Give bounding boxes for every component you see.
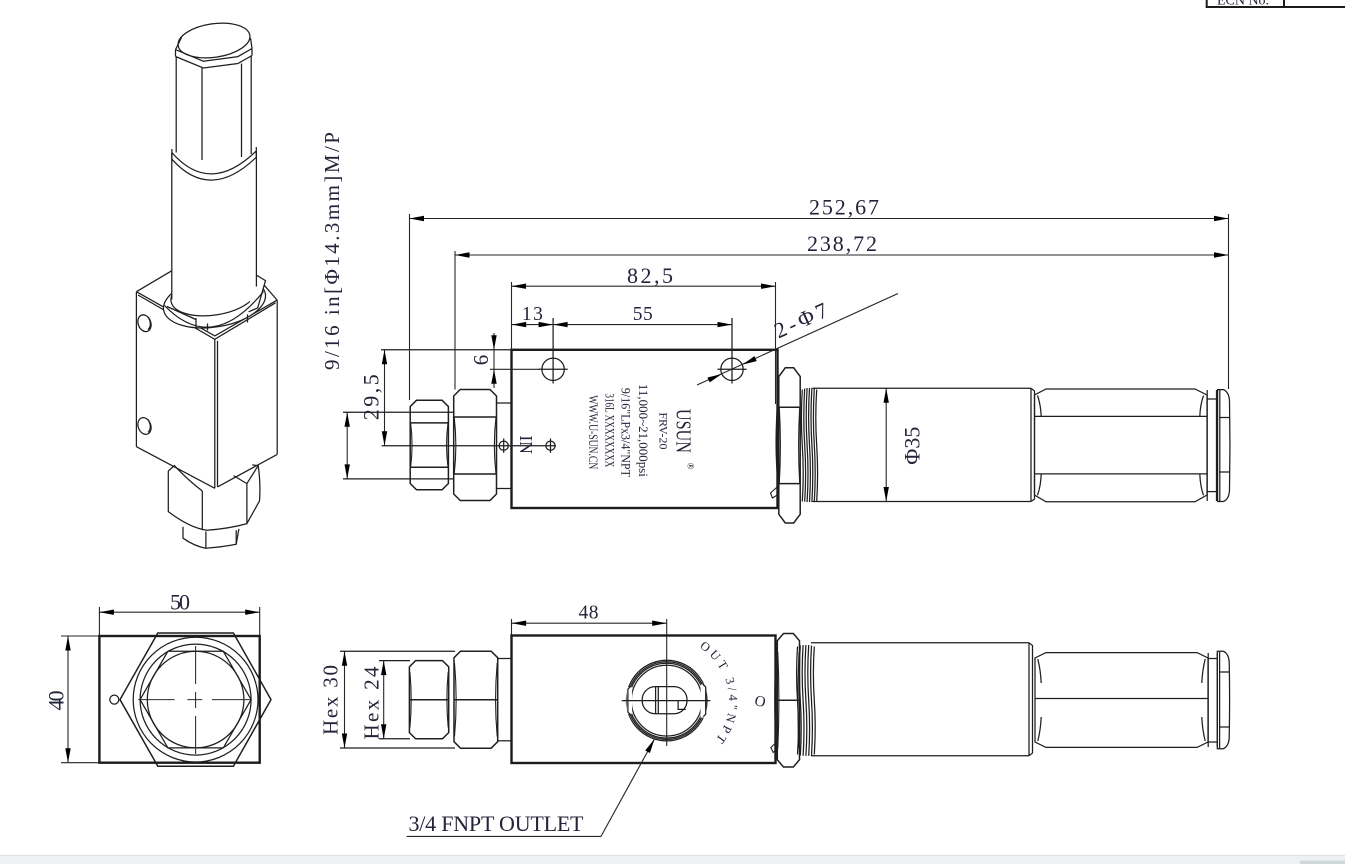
svg-text:252,67: 252,67 [809,195,879,220]
svg-text:3/4 FNPT OUTLET: 3/4 FNPT OUTLET [409,811,585,836]
svg-text:Hex 24: Hex 24 [360,666,384,740]
svg-text:Φ35: Φ35 [900,427,925,465]
svg-text:9/16 in[Φ14.3mm]M/P: 9/16 in[Φ14.3mm]M/P [320,132,344,370]
svg-text:238,72: 238,72 [807,231,877,256]
svg-text:®: ® [686,463,696,470]
svg-text:USUN: USUN [672,409,696,453]
svg-text:ECN No.: ECN No. [1217,0,1269,9]
svg-text:9/16"LPx3/4"NPT: 9/16"LPx3/4"NPT [619,388,634,477]
svg-text:FRV-20: FRV-20 [657,412,671,449]
svg-text:40: 40 [44,690,69,710]
svg-text:11,000~21,000psi: 11,000~21,000psi [636,384,651,477]
svg-text:82,5: 82,5 [627,263,673,288]
svg-text:WWW.U-SUN.CN: WWW.U-SUN.CN [586,395,601,469]
svg-text:O: O [753,693,768,711]
svg-text:55: 55 [633,304,653,325]
svg-text:316L XXXXXXXX: 316L XXXXXXXX [602,393,617,467]
svg-text:6: 6 [469,355,493,366]
svg-text:13: 13 [522,304,543,325]
svg-text:29,5: 29,5 [359,374,384,420]
svg-text:IN: IN [516,435,536,454]
svg-text:48: 48 [579,603,599,624]
svg-text:50: 50 [170,590,190,615]
svg-text:2-Φ7: 2-Φ7 [770,297,831,343]
svg-text:Hex 30: Hex 30 [319,665,343,735]
